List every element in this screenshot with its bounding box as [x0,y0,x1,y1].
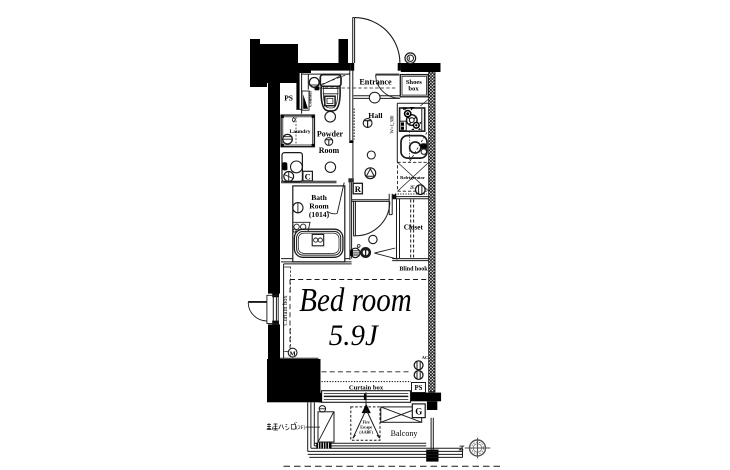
svg-text:PS: PS [284,94,293,103]
svg-text:G: G [415,407,422,417]
svg-text:Hall: Hall [368,111,383,120]
svg-text:C: C [305,171,311,181]
svg-text:Curtain box: Curtain box [282,295,289,326]
svg-text:M: M [290,351,296,358]
svg-text:Laundry: Laundry [289,129,310,135]
svg-text:Room: Room [309,201,329,210]
svg-text:Escape: Escape [360,424,372,429]
svg-text:Balcony: Balcony [391,429,418,438]
svg-text:box: box [408,86,419,93]
svg-text:Room: Room [319,146,340,155]
svg-text:Refrigerator: Refrigerator [400,175,425,180]
svg-text:Blind hook: Blind hook [399,266,428,272]
svg-text:PS: PS [415,385,423,392]
svg-text:(2F): (2F) [296,424,305,431]
svg-text:Curtain box: Curtain box [349,385,384,392]
svg-text:Entrance: Entrance [359,77,392,86]
svg-text:AC: AC [422,355,428,360]
svg-text:(AABF): (AABF) [359,430,373,435]
svg-text:Counter: Counter [307,91,312,107]
svg-text:5.9J: 5.9J [329,319,380,352]
svg-text:Powder: Powder [317,130,344,139]
svg-text:2E: 2E [410,184,415,189]
svg-text:(1014): (1014) [309,210,330,219]
svg-text:W=1,300: W=1,300 [391,115,396,134]
svg-text:Closet: Closet [404,223,424,231]
svg-text:R: R [355,184,362,194]
svg-text:Bed room: Bed room [299,282,412,319]
